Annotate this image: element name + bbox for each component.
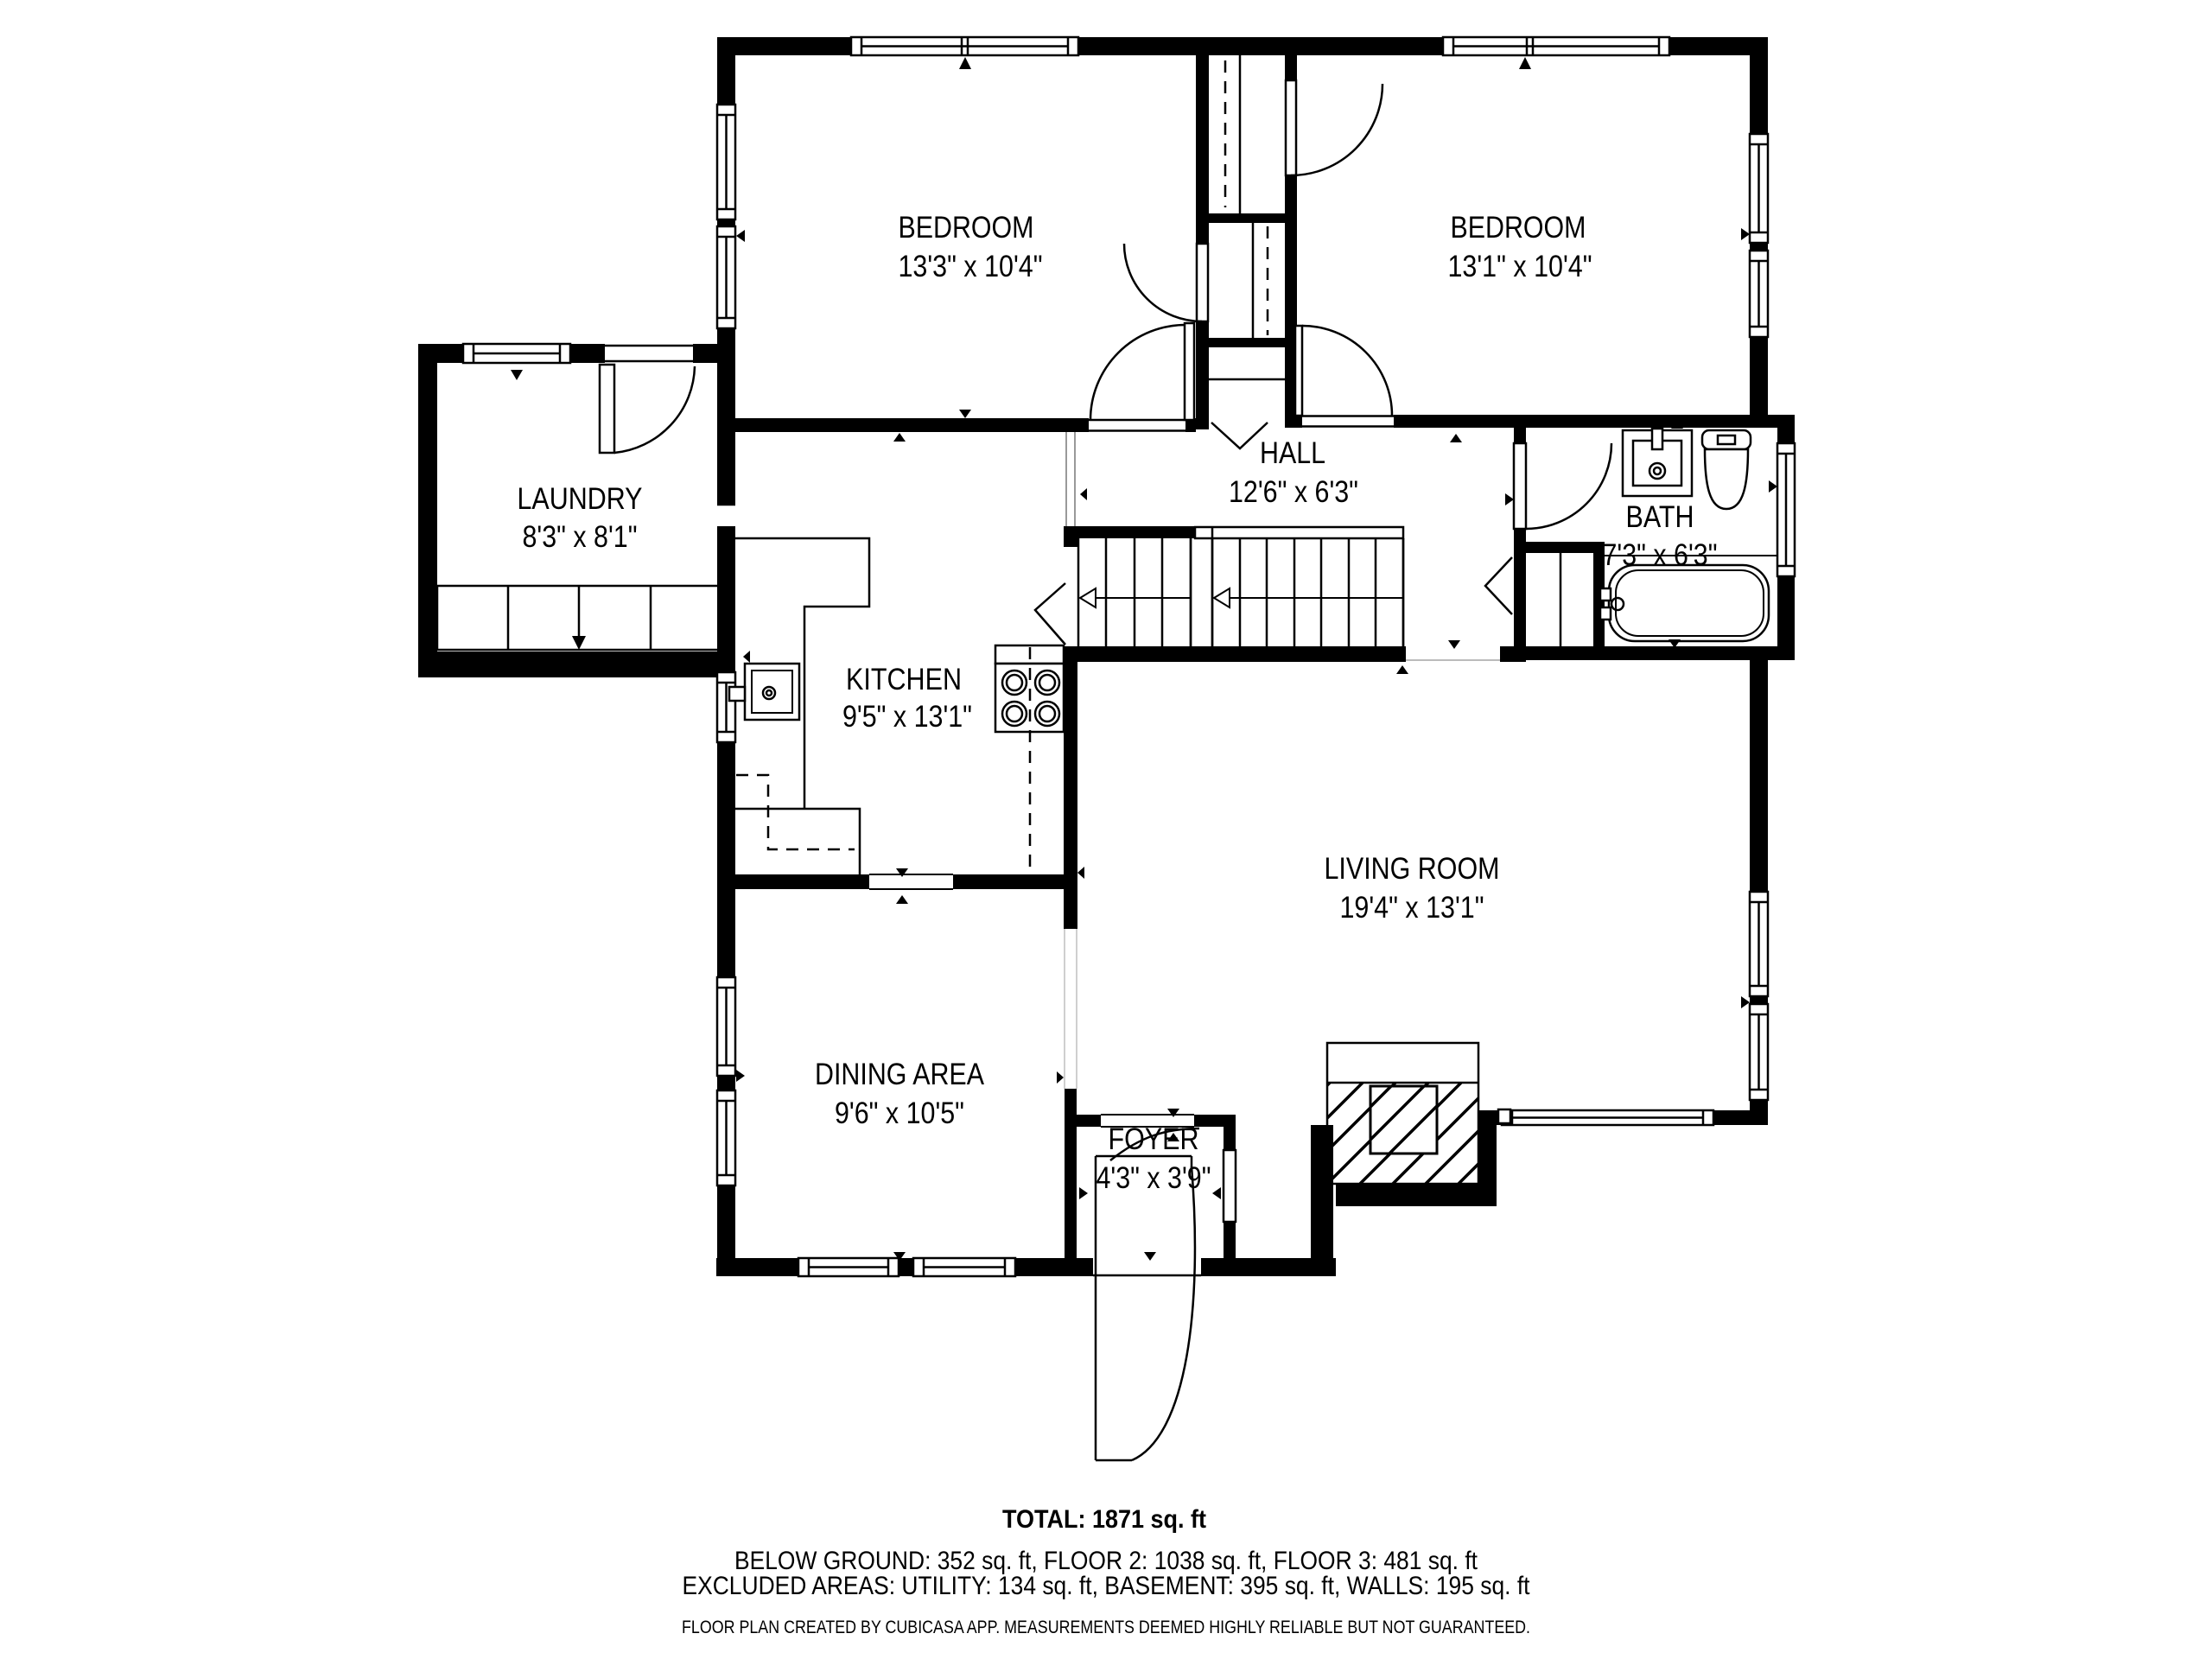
svg-text:HALL: HALL (1260, 436, 1325, 470)
svg-text:13'1" x 10'4": 13'1" x 10'4" (1448, 250, 1592, 283)
svg-text:EXCLUDED AREAS: UTILITY: 134 s: EXCLUDED AREAS: UTILITY: 134 sq. ft, BAS… (683, 1572, 1531, 1600)
svg-text:12'6" x 6'3": 12'6" x 6'3" (1229, 475, 1358, 509)
svg-text:DINING AREA: DINING AREA (815, 1058, 985, 1091)
svg-text:13'3" x 10'4": 13'3" x 10'4" (899, 250, 1043, 283)
svg-text:9'5" x 13'1": 9'5" x 13'1" (842, 700, 972, 734)
svg-text:19'4" x 13'1": 19'4" x 13'1" (1340, 891, 1484, 925)
svg-text:8'3" x 8'1": 8'3" x 8'1" (523, 520, 638, 554)
svg-text:4'3" x 3'9": 4'3" x 3'9" (1096, 1161, 1211, 1195)
svg-text:KITCHEN: KITCHEN (846, 663, 962, 696)
svg-text:9'6" x 10'5": 9'6" x 10'5" (835, 1096, 964, 1130)
svg-text:LAUNDRY: LAUNDRY (518, 482, 643, 516)
svg-text:BATH: BATH (1626, 500, 1694, 534)
svg-text:BEDROOM: BEDROOM (899, 211, 1034, 245)
svg-text:LIVING ROOM: LIVING ROOM (1325, 852, 1500, 886)
svg-text:TOTAL: 1871 sq. ft: TOTAL: 1871 sq. ft (1002, 1505, 1206, 1534)
svg-text:FOYER: FOYER (1109, 1122, 1199, 1156)
svg-text:BEDROOM: BEDROOM (1451, 211, 1586, 245)
svg-text:FLOOR PLAN CREATED BY CUBICASA: FLOOR PLAN CREATED BY CUBICASA APP. MEAS… (682, 1618, 1530, 1637)
svg-text:7'3" x 6'3": 7'3" x 6'3" (1603, 538, 1718, 572)
